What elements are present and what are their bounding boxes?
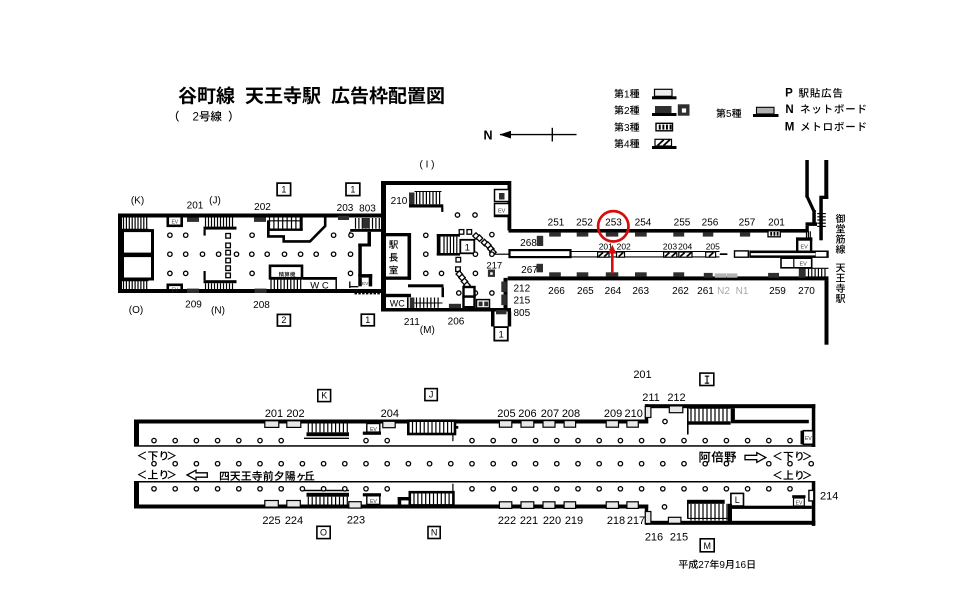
- svg-text:220: 220: [543, 515, 561, 527]
- svg-text:205: 205: [706, 242, 720, 252]
- svg-text:224: 224: [285, 515, 303, 527]
- svg-text:270: 270: [798, 286, 815, 297]
- svg-text:204: 204: [381, 408, 399, 420]
- svg-text:3: 3: [624, 123, 630, 134]
- svg-text:N: N: [785, 104, 793, 116]
- svg-text:203: 203: [663, 242, 677, 252]
- svg-text:265: 265: [577, 286, 594, 297]
- svg-text:M: M: [703, 541, 711, 551]
- svg-text:210: 210: [625, 408, 643, 420]
- svg-text:256: 256: [702, 217, 719, 228]
- svg-text:9: 9: [719, 560, 725, 571]
- svg-text:209: 209: [604, 408, 622, 420]
- svg-text:264: 264: [605, 286, 622, 297]
- svg-text:251: 251: [548, 217, 565, 228]
- svg-text:205: 205: [497, 408, 515, 420]
- svg-text:(K): (K): [131, 196, 144, 207]
- svg-text:EV: EV: [498, 208, 506, 214]
- svg-text:206: 206: [518, 408, 536, 420]
- svg-text:262: 262: [672, 286, 689, 297]
- svg-text:27: 27: [698, 560, 710, 571]
- svg-text:N2: N2: [717, 286, 730, 297]
- svg-text:202: 202: [286, 408, 304, 420]
- svg-text:5: 5: [726, 109, 732, 120]
- svg-text:214: 214: [820, 491, 838, 503]
- svg-text:( I ): ( I ): [420, 160, 435, 171]
- svg-text:M: M: [785, 122, 795, 134]
- svg-text:201: 201: [633, 369, 651, 381]
- svg-text:EV: EV: [362, 281, 369, 287]
- svg-text:212: 212: [667, 392, 685, 404]
- svg-text:221: 221: [520, 515, 538, 527]
- svg-text:254: 254: [635, 217, 652, 228]
- svg-text:N1: N1: [736, 286, 749, 297]
- svg-text:223: 223: [347, 514, 365, 526]
- svg-text:202: 202: [617, 241, 631, 251]
- svg-text:L: L: [735, 495, 740, 505]
- svg-text:206: 206: [448, 316, 465, 327]
- svg-text:219: 219: [565, 515, 583, 527]
- svg-text:201: 201: [265, 408, 283, 420]
- svg-text:EV: EV: [800, 262, 808, 268]
- svg-text:218: 218: [607, 515, 625, 527]
- svg-text:N: N: [483, 129, 492, 143]
- svg-text:EV: EV: [171, 288, 178, 294]
- svg-text:(J): (J): [209, 196, 221, 207]
- svg-text:203: 203: [337, 203, 354, 214]
- svg-text:255: 255: [674, 217, 691, 228]
- svg-text:263: 263: [632, 286, 649, 297]
- svg-text:16: 16: [735, 560, 747, 571]
- svg-text:1: 1: [350, 185, 355, 195]
- svg-text:215: 215: [670, 531, 688, 543]
- svg-text:201: 201: [187, 201, 204, 212]
- svg-text:267: 267: [521, 265, 538, 276]
- svg-text:253: 253: [605, 217, 622, 228]
- svg-text:207: 207: [541, 408, 559, 420]
- svg-text:(M): (M): [420, 325, 435, 336]
- svg-text:EV: EV: [801, 244, 809, 250]
- svg-text:211: 211: [642, 392, 660, 404]
- svg-text:2: 2: [281, 315, 286, 325]
- svg-text:1: 1: [465, 242, 470, 253]
- svg-text:210: 210: [391, 196, 408, 207]
- svg-text:266: 266: [548, 286, 565, 297]
- svg-text:201: 201: [768, 217, 785, 228]
- svg-text:222: 222: [498, 515, 516, 527]
- svg-text:257: 257: [739, 217, 756, 228]
- svg-text:(N): (N): [211, 306, 225, 317]
- svg-text:212: 212: [513, 283, 530, 294]
- svg-text:1: 1: [281, 185, 286, 195]
- svg-text:204: 204: [678, 242, 692, 252]
- svg-text:252: 252: [576, 217, 593, 228]
- svg-text:WC: WC: [390, 298, 405, 308]
- svg-text:EV: EV: [171, 220, 178, 226]
- svg-text:N: N: [431, 528, 438, 538]
- svg-text:225: 225: [262, 515, 280, 527]
- svg-text:217: 217: [627, 515, 645, 527]
- svg-text:4: 4: [624, 139, 630, 150]
- svg-text:2: 2: [624, 106, 630, 117]
- svg-text:805: 805: [513, 308, 530, 319]
- svg-text:215: 215: [513, 296, 530, 307]
- svg-text:1: 1: [498, 330, 503, 341]
- svg-text:261: 261: [697, 286, 714, 297]
- svg-text:803: 803: [359, 204, 376, 215]
- svg-text:EV: EV: [796, 501, 803, 507]
- svg-text:W C: W C: [310, 280, 329, 291]
- svg-text:259: 259: [769, 286, 786, 297]
- svg-text:(O): (O): [129, 305, 143, 316]
- svg-text:209: 209: [185, 300, 202, 311]
- svg-text:1: 1: [624, 89, 630, 100]
- svg-text:J: J: [429, 390, 434, 400]
- svg-text:1: 1: [365, 315, 370, 325]
- svg-text:EV: EV: [370, 499, 377, 505]
- svg-text:P: P: [785, 88, 793, 100]
- svg-text:O: O: [320, 528, 327, 538]
- svg-text:2: 2: [193, 112, 199, 124]
- svg-text:268: 268: [520, 238, 537, 249]
- svg-text:202: 202: [254, 202, 271, 213]
- svg-text:EV: EV: [805, 436, 812, 442]
- svg-text:216: 216: [645, 531, 663, 543]
- svg-text:K: K: [321, 391, 327, 401]
- svg-text:211: 211: [404, 317, 420, 328]
- svg-text:208: 208: [253, 300, 270, 311]
- svg-text:208: 208: [562, 408, 580, 420]
